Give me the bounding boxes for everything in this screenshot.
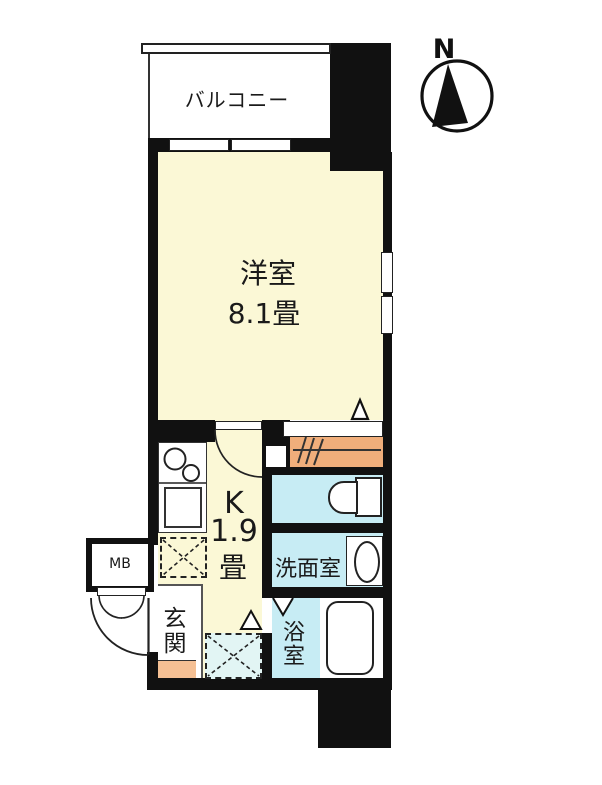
wall-pillar-top-right bbox=[330, 43, 391, 171]
toilet-tank bbox=[355, 477, 382, 517]
wall-entry-jamb bbox=[147, 652, 158, 682]
balcony-railing bbox=[141, 43, 331, 54]
wall-washroom-bath bbox=[262, 587, 383, 598]
living-room-area: 8.1畳 bbox=[194, 292, 334, 332]
washroom-label: 洗面室 bbox=[270, 551, 346, 583]
north-label: N bbox=[433, 34, 456, 65]
wall-left bbox=[148, 138, 158, 545]
toilet-bowl bbox=[328, 481, 358, 514]
bathtub bbox=[326, 601, 374, 675]
fridge-space bbox=[160, 537, 207, 578]
window-top-left bbox=[169, 139, 229, 151]
wall-room-bottom bbox=[148, 420, 215, 442]
shoe-cabinet-arcs-icon bbox=[99, 596, 144, 618]
wall-bath-left bbox=[262, 633, 272, 682]
wall-closet-toilet bbox=[262, 467, 383, 475]
kitchen-door-leaf bbox=[215, 421, 262, 430]
entrance-label: 玄関 bbox=[163, 600, 189, 662]
closet-duct-inset bbox=[266, 446, 286, 467]
entrance-step bbox=[158, 660, 196, 678]
closet-door bbox=[283, 421, 383, 437]
bathroom-label: 浴室 bbox=[281, 612, 307, 676]
shoe-cabinet bbox=[97, 587, 146, 596]
wall-toilet-washroom bbox=[262, 523, 383, 533]
washbasin-bowl bbox=[354, 541, 380, 583]
balcony-left-edge bbox=[148, 54, 150, 140]
window-right-lower bbox=[381, 296, 393, 334]
floor-plan: バルコニー 洋室 8.1畳 K 1.9 畳 洗面室 浴室 玄関 MB N bbox=[0, 0, 602, 785]
wall-right bbox=[383, 152, 392, 690]
compass-icon: N bbox=[422, 34, 492, 131]
balcony-label: バルコニー bbox=[157, 84, 317, 113]
entrance-door-icon bbox=[91, 598, 149, 655]
kitchen-area-unit: 畳 bbox=[203, 546, 263, 586]
closet-floor bbox=[290, 436, 383, 468]
meter-box-label: MB bbox=[96, 556, 144, 572]
washer-space bbox=[205, 633, 262, 679]
window-top-right bbox=[231, 139, 291, 151]
kitchen-sink bbox=[164, 487, 202, 528]
structure-block-bottom bbox=[318, 682, 391, 748]
kitchen-area-value: 1.9 bbox=[204, 514, 264, 549]
window-right-upper bbox=[381, 252, 393, 293]
living-room-label: 洋室 bbox=[218, 252, 318, 292]
